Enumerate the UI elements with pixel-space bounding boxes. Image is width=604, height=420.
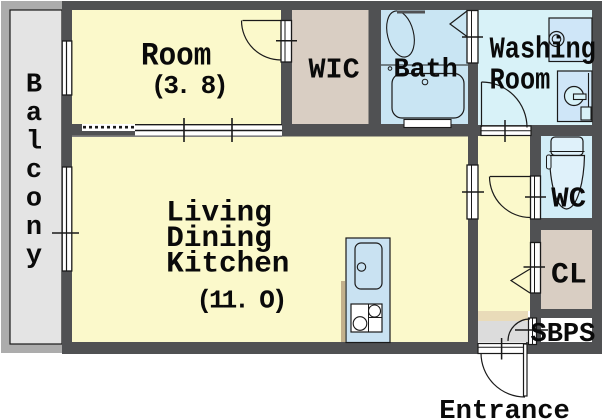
svg-text:Entrance: Entrance [439, 396, 570, 420]
svg-text:(11. O): (11. O) [197, 286, 285, 316]
svg-text:Bath: Bath [394, 56, 458, 86]
svg-text:Room: Room [490, 65, 551, 99]
svg-text:n: n [26, 213, 42, 243]
svg-text:B: B [26, 71, 42, 101]
svg-text:SBPS: SBPS [531, 320, 596, 350]
svg-text:y: y [26, 242, 42, 272]
svg-text:Washing: Washing [490, 34, 596, 68]
svg-text:l: l [26, 128, 42, 158]
svg-text:c: c [26, 156, 42, 186]
svg-text:WC: WC [551, 183, 586, 216]
svg-text:(3. 8): (3. 8) [151, 71, 225, 101]
svg-text:WIC: WIC [309, 54, 360, 87]
svg-text:a: a [26, 99, 42, 129]
svg-text:CL: CL [551, 258, 587, 292]
svg-text:Kitchen: Kitchen [166, 248, 289, 281]
svg-text:Room: Room [141, 38, 211, 75]
svg-text:o: o [26, 185, 42, 215]
